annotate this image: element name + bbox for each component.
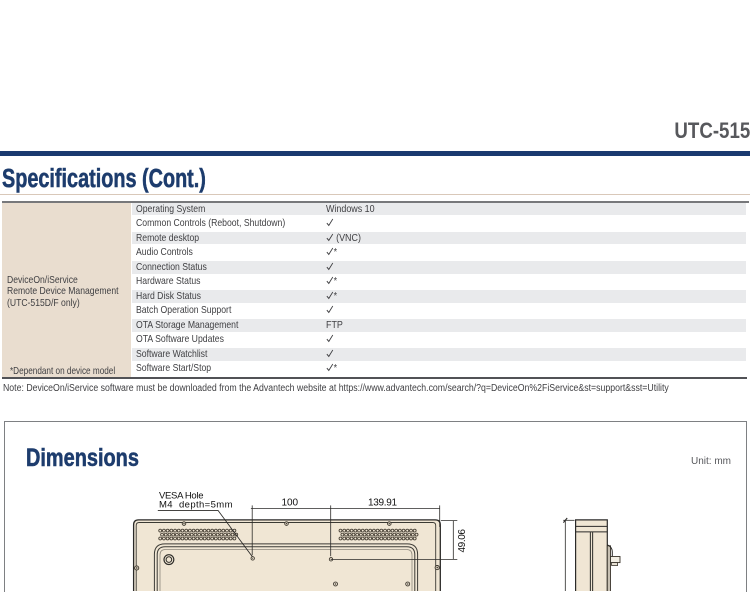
svg-text:139.91: 139.91 (368, 498, 397, 509)
svg-text:49.06: 49.06 (457, 529, 468, 553)
svg-text:100: 100 (282, 498, 299, 509)
svg-text:M4 depth=5mm: M4 depth=5mm (159, 499, 233, 510)
